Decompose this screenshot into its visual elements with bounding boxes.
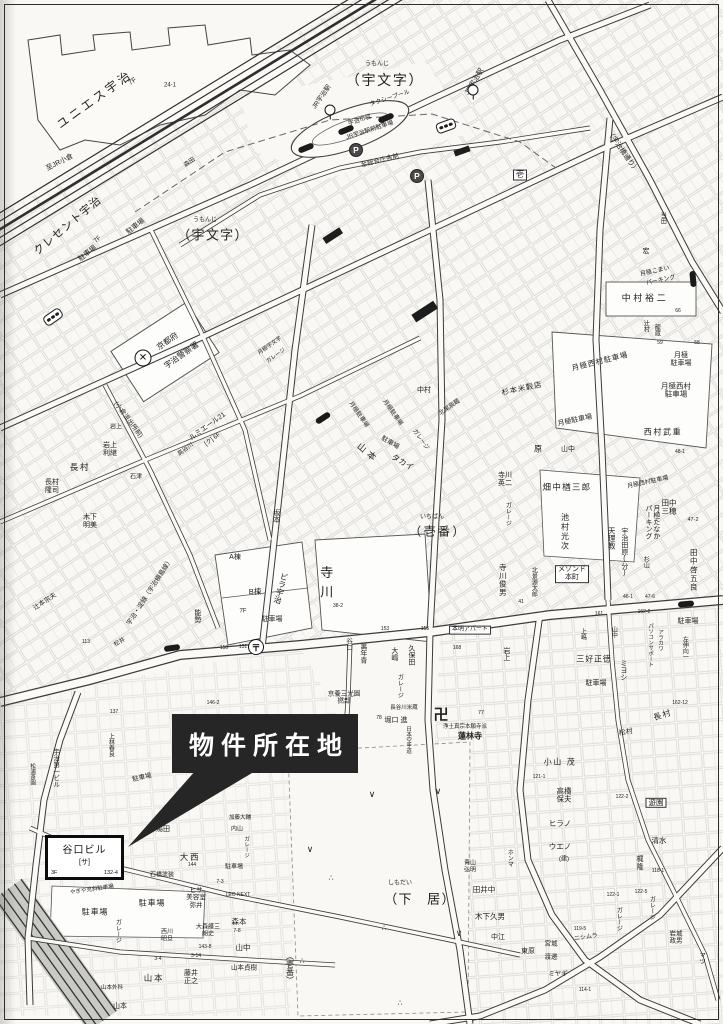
map-label: 山本貞樹 xyxy=(231,964,257,971)
map-label: 西村武重 xyxy=(644,429,682,438)
map-label: 岩上 xyxy=(110,425,122,432)
bus-stop-icon xyxy=(377,112,394,124)
map-label: ホンマ xyxy=(506,849,513,867)
map-label: 月極駐車場 xyxy=(347,401,370,429)
map-label: LEO NEXT xyxy=(226,893,251,899)
map-label: 京都府 xyxy=(156,331,181,352)
map-label: 浄土真宗本願寺派 xyxy=(443,724,487,730)
map-label: 162-12 xyxy=(672,701,688,707)
map-label: 大西 xyxy=(180,853,200,863)
map-label: 寺川俊男 xyxy=(498,564,506,597)
map-label: 卍 xyxy=(433,708,448,725)
map-label: 143-8 xyxy=(199,945,212,951)
map-label: 石橋塗装 xyxy=(150,873,174,880)
bus-stop-icon xyxy=(689,271,696,287)
map-label: 田井中 xyxy=(473,886,496,894)
map-label: 月極西村駐車場 xyxy=(627,475,669,490)
property-location-callout: 物件所在地 xyxy=(172,714,358,773)
map-label: 月極西村駐車場 xyxy=(571,351,629,373)
property-unit: [サ] xyxy=(50,857,119,867)
map-label: 大森護三 朗史 xyxy=(196,924,220,937)
map-label: A棟 xyxy=(229,554,241,562)
map-label: 山本 xyxy=(113,1003,127,1011)
map-label: ガレージ xyxy=(114,919,121,943)
map-label: クレセント宇治 xyxy=(32,194,105,258)
map-label: いちばん xyxy=(420,515,444,522)
map-label: 至総合庁舎前 xyxy=(360,153,400,169)
map-label: メゾンド 本町 xyxy=(555,565,589,583)
map-label: 駐車場 xyxy=(77,244,98,263)
map-label: 辻本宗夫 xyxy=(32,592,58,612)
map-label: B棟 xyxy=(249,588,262,596)
map-label: 日本空手道 xyxy=(405,726,411,754)
traffic-signal-icon xyxy=(42,307,65,327)
map-label: 長村 xyxy=(70,463,90,473)
map-label: JR宇治駅前駐車場 xyxy=(345,120,394,142)
map-label: ガレージ xyxy=(396,674,403,698)
map-label: 駐車場 xyxy=(82,909,108,918)
station-entrance-icon xyxy=(325,105,336,116)
property-location-label: 物件所在地 xyxy=(189,726,349,762)
map-label: 杉本米穀店 xyxy=(501,381,543,398)
map-label: ∨ xyxy=(307,844,314,854)
map-label: （宇治橋通り） xyxy=(605,130,640,175)
map-label: 月極西村 駐車場 xyxy=(661,383,691,400)
map-label: 当田 xyxy=(659,212,666,224)
map-label: [ク] 6F xyxy=(204,432,223,448)
map-label: 38-2 xyxy=(333,604,343,610)
map-label: 駐車場 xyxy=(225,865,243,872)
map-label: 森本 xyxy=(232,918,247,926)
map-label: 高谷川 xyxy=(177,442,196,458)
map-label: 加藤大輔 xyxy=(229,815,251,821)
map-label: 中江 xyxy=(491,934,505,942)
map-label: 原 xyxy=(534,446,542,455)
map-label: （宇文字） xyxy=(177,229,249,244)
map-label: 山本 xyxy=(355,441,381,465)
map-label: 山本 xyxy=(144,974,164,984)
bus-stop-icon xyxy=(297,142,314,154)
map-label: アラカワ xyxy=(657,629,663,651)
map-label: 寺川 英二 xyxy=(498,472,512,488)
map-label: 岩上 利継 xyxy=(103,442,117,458)
map-label: 41 xyxy=(518,600,524,606)
map-label: 59 xyxy=(657,341,663,347)
map-label: パソコンサポート xyxy=(647,623,653,667)
map-label: 松浦茶園 xyxy=(29,763,35,785)
map-label: 坂本 xyxy=(272,509,280,523)
map-label: 池村光次 xyxy=(560,513,569,551)
map-label: 7F xyxy=(93,235,103,245)
map-label: 122-5 xyxy=(635,890,648,896)
map-label: 北尾辰蔵 xyxy=(438,398,462,417)
map-label: 岩城 政男 xyxy=(670,931,683,946)
map-label: 蓮林寺 xyxy=(458,733,482,742)
map-label: 7F xyxy=(239,609,246,616)
map-label: 松井 xyxy=(113,637,127,649)
map-label: 122-1 xyxy=(607,893,620,899)
map-label: ∴ xyxy=(299,958,304,967)
map-label: 中村裕二 xyxy=(622,293,669,303)
map-label: ミヤギ xyxy=(548,970,568,977)
map-label: 118-1 xyxy=(652,869,664,875)
map-label: 114-1 xyxy=(579,988,591,994)
map-label: 駐車場 xyxy=(125,217,146,236)
map-label: ウエノ xyxy=(549,843,572,851)
map-label: 宇治警察署 xyxy=(163,341,201,371)
map-label: 遊園 xyxy=(646,798,667,808)
map-label: 石津 xyxy=(130,475,142,482)
map-label: 月極駐車場 xyxy=(381,399,404,427)
map-label: 小山 茂 xyxy=(544,759,577,768)
map-label: 駐車場 xyxy=(262,616,283,624)
map-label: ガレージ xyxy=(648,896,655,920)
map-label: 内山 xyxy=(231,827,243,834)
map-label: 山本外科 xyxy=(101,985,123,991)
map-label: ガレージ xyxy=(410,428,429,451)
bus-stop-icon xyxy=(315,411,332,425)
property-floors: 3F xyxy=(51,870,57,876)
post-office-icon: 〒 xyxy=(248,639,264,655)
map-label: ∨ xyxy=(435,786,442,796)
map-label: 7-8 xyxy=(233,929,240,935)
map-label: 山中 xyxy=(236,944,251,952)
map-label: 西川 昭旦 xyxy=(161,929,173,942)
map-label: （壱番） xyxy=(285,952,294,984)
map-label: 左伸向一 xyxy=(681,636,688,660)
map-label: 119-5 xyxy=(574,927,586,933)
map-label: 162-2 xyxy=(638,610,651,616)
map-label: 駐車場 xyxy=(380,435,401,451)
map-label: 47-6 xyxy=(645,595,655,601)
map-label: 150 xyxy=(220,646,228,652)
map-label: 松村 xyxy=(618,728,633,738)
station-entrance-icon xyxy=(468,85,479,96)
map-label: ∴ xyxy=(381,925,386,934)
map-label: 長村 xyxy=(652,709,673,723)
map-label: ∨ xyxy=(369,789,376,799)
map-label: 藤井 正之 xyxy=(184,970,198,986)
map-label: 上林春良 xyxy=(107,733,114,757)
map-label: 木下久男 xyxy=(475,913,505,921)
map-label: 66 xyxy=(675,309,681,315)
map-label: 堀口 進 xyxy=(385,717,408,725)
property-parcel-box: 谷口ビル [サ] 3F 132-4 xyxy=(45,835,124,880)
map-label: 山中 xyxy=(610,626,617,638)
parking-icon: P xyxy=(349,143,363,157)
map-label: ガレージ xyxy=(504,502,511,526)
map-label: 東原 xyxy=(521,948,535,956)
map-label: 3-4 xyxy=(154,957,161,963)
map-label: (小倉派出所前) xyxy=(112,401,144,440)
map-label: 清水 xyxy=(652,837,667,845)
traffic-signal-icon xyxy=(435,117,458,134)
map-label: ガレージ xyxy=(615,907,622,931)
map-label: （宇文字） xyxy=(346,73,424,89)
map-label: ビラ宇治 xyxy=(272,571,289,604)
map-label: 宇治第一ビル xyxy=(51,749,58,788)
map-label: ガレージ xyxy=(243,836,249,858)
map-label: 77 xyxy=(478,710,484,716)
map-label: 58 xyxy=(694,341,700,347)
map-label: 宮城 xyxy=(545,940,558,947)
map-label: 山中 xyxy=(561,446,575,454)
map-label: (建) xyxy=(559,857,569,864)
map-label: 壱 xyxy=(513,170,527,181)
map-label: 辻村 xyxy=(642,320,649,332)
map-label: 杉山 xyxy=(642,556,649,568)
map-label: 月極 駐車場 xyxy=(671,352,692,368)
map-label: 梶 隆 xyxy=(637,856,644,872)
map-label: うもんじ xyxy=(193,218,217,225)
map-label: 駐車場 xyxy=(678,618,699,626)
map-label: 7F xyxy=(127,76,138,87)
map-label: （壱番） xyxy=(409,525,467,538)
map-label: 萬年青 xyxy=(359,643,367,664)
map-label: 三好正徳 xyxy=(576,656,611,665)
map-label: 北景源太郎 xyxy=(530,567,537,597)
bus-stop-icon xyxy=(678,600,694,607)
map-label: 田中啓五良 xyxy=(689,548,697,591)
map-label: ヒサ 美容室 弥井 xyxy=(186,887,206,909)
map-label: 137 xyxy=(110,710,118,716)
map-label: 大嶋 xyxy=(390,647,398,661)
map-label: 24-1 xyxy=(164,83,176,90)
map-label: ヒラノ xyxy=(549,820,571,828)
map-label: 146-2 xyxy=(207,701,220,707)
map-label: 48-1 xyxy=(675,450,685,456)
map-label: （下 居） xyxy=(384,893,456,908)
map-label: 122-2 xyxy=(616,795,629,801)
bus-stop-icon xyxy=(164,644,181,652)
map-label: 畑中楢三郎 xyxy=(543,483,592,493)
map-label: 木下 明美 xyxy=(83,514,97,530)
map-label: 龍蔵 xyxy=(653,324,660,336)
map-label: 144 xyxy=(188,863,196,869)
map-label: 田中 三穂 xyxy=(662,500,677,517)
map-label: 161 xyxy=(595,612,603,618)
map-label: 113 xyxy=(82,640,90,646)
map-label: タクシープール xyxy=(369,89,411,108)
map-label: 78 xyxy=(376,716,382,722)
map-label: ルミエール21 xyxy=(188,411,227,442)
map-label: 月極駐車場 xyxy=(557,414,593,429)
property-lot-number: 132-4 xyxy=(104,870,118,876)
map-label: 岩上 xyxy=(502,647,510,661)
map-label: 151 xyxy=(239,645,247,651)
map-label: 月極こまい xyxy=(640,266,671,279)
police-station-icon: ✕ xyxy=(135,350,152,367)
map-label: 駐車場 xyxy=(139,900,165,909)
map-label: マツ xyxy=(697,952,704,965)
map-label: タカイ xyxy=(389,453,414,473)
map-label: 至JR小倉 xyxy=(45,153,75,173)
map-label: 長村 隆司 xyxy=(45,479,59,495)
map-label: ユニエス宇治 xyxy=(55,68,136,132)
map-label: うもんじ xyxy=(365,62,389,69)
map-label: 久保田 xyxy=(407,645,415,666)
map-label: 121-1 xyxy=(533,775,546,781)
map-label: 153 xyxy=(381,627,389,633)
map-label: 47-2 xyxy=(687,517,698,523)
map-label: 46-1 xyxy=(623,595,633,601)
map-label: 能勢 xyxy=(193,609,201,623)
map-label: 谷口 xyxy=(344,638,351,651)
map-label: 長谷川米蔵 xyxy=(390,705,418,711)
map-label: やぎや児斜駐車場 xyxy=(70,884,114,896)
map-label: 森田 xyxy=(183,157,197,169)
map-label: 155 xyxy=(421,627,429,633)
map-label: 宇治田原(分) xyxy=(620,528,628,577)
map-label: ∴ xyxy=(397,1000,402,1009)
scanned-map-page: ユニエス宇治7F24-1至JR小倉うもんじ（宇文字）タクシープールJR宇治駅JR… xyxy=(0,0,723,1024)
map-label: 168 xyxy=(453,646,461,652)
map-label: 中村 xyxy=(417,387,431,395)
bus-stop-icon xyxy=(337,124,354,136)
map-label: 本明アパート xyxy=(449,626,491,635)
map-label: しもだい xyxy=(388,881,412,888)
map-label: ∴ xyxy=(328,875,333,884)
map-label: 宏 xyxy=(643,248,650,256)
parking-icon: P xyxy=(410,169,424,183)
map-label: 京養三光園 撚部 xyxy=(328,691,361,706)
map-label: 駐車場 xyxy=(586,680,607,688)
map-label: 湯田 xyxy=(156,826,170,834)
map-label: 駐車場 xyxy=(132,772,153,783)
map-label: 3-14 xyxy=(191,954,201,960)
map-label: 寺川 xyxy=(318,566,333,605)
map-label: 月極宇文字 xyxy=(257,336,283,357)
map-label: ∨ xyxy=(456,928,463,938)
map-label: 渡邊 xyxy=(545,953,558,960)
map-label: ニシムラ xyxy=(574,933,598,943)
map-label: 宇治・淀線（宇治槇島線） xyxy=(126,557,175,626)
map-label: 高橋 保夫 xyxy=(557,788,572,805)
map-label: 7-3 xyxy=(216,880,223,886)
map-label: パーキング xyxy=(646,275,677,288)
map-label: 上嶋 xyxy=(579,628,586,640)
map-label: ミヨシ xyxy=(619,660,627,681)
map-label: 青山 弘明 xyxy=(464,860,476,873)
property-name: 谷口ビル xyxy=(50,841,119,856)
map-label: 月極たなか パーキング xyxy=(644,505,660,540)
map-label: ガレージ xyxy=(265,347,286,365)
map-label: 天理教 xyxy=(607,527,615,550)
